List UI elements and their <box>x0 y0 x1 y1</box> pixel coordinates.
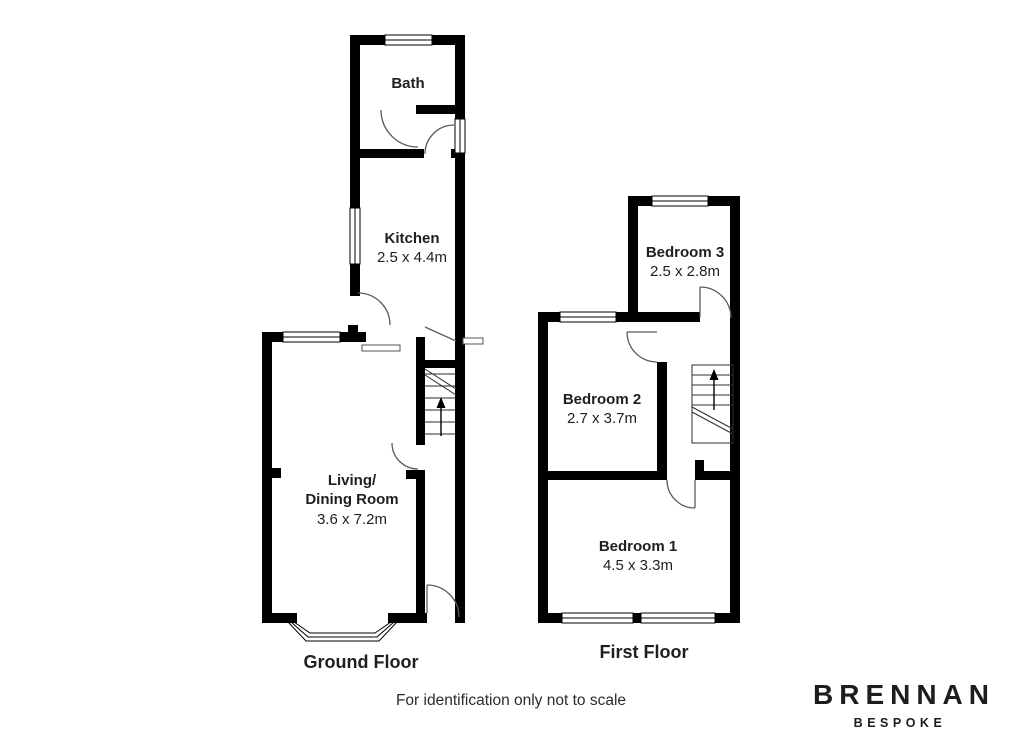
brand-name: BRENNAN <box>813 679 995 710</box>
brand-logo: BRENNAN BESPOKE <box>813 679 995 730</box>
wall <box>350 264 360 296</box>
stairs-first-floor <box>692 365 733 443</box>
side-door-opening <box>455 119 465 153</box>
room-label-kitchen: Kitchen <box>384 230 439 247</box>
kitchen-door-arc <box>358 293 390 325</box>
window <box>350 208 360 264</box>
wall <box>657 362 667 480</box>
side-door-arc <box>425 125 454 154</box>
bedroom3-door-arc <box>700 287 731 318</box>
room-size-living: 3.6 x 7.2m <box>317 511 387 528</box>
wall <box>695 460 704 471</box>
window <box>283 332 340 342</box>
room-label-bedroom2: Bedroom 2 <box>563 391 641 408</box>
bay-window <box>288 622 397 641</box>
first-floor-label: First Floor <box>600 642 689 662</box>
first-floor: Bedroom 3 2.5 x 2.8m Bedroom 2 2.7 x 3.7… <box>538 196 740 662</box>
step <box>362 345 400 351</box>
window <box>652 196 708 206</box>
wall <box>730 196 740 623</box>
wall <box>416 470 425 613</box>
wall <box>262 332 272 623</box>
hall-door-leaf <box>425 327 456 341</box>
wall <box>695 471 740 480</box>
window <box>560 312 616 322</box>
room-size-bedroom1: 4.5 x 3.3m <box>603 557 673 574</box>
room-label-living-line1: Living/ <box>328 472 377 489</box>
room-label-bedroom1: Bedroom 1 <box>599 538 677 555</box>
wall <box>416 105 463 114</box>
bath-door-arc <box>381 110 418 147</box>
room-size-bedroom2: 2.7 x 3.7m <box>567 410 637 427</box>
room-size-kitchen: 2.5 x 4.4m <box>377 249 447 266</box>
ground-floor-label: Ground Floor <box>304 652 419 672</box>
ground-floor: Bath Kitchen 2.5 x 4.4m Living/ Dining R… <box>262 35 483 672</box>
bay-opening <box>297 613 388 623</box>
front-door-arc <box>427 585 459 617</box>
up-arrow-icon <box>437 397 446 436</box>
room-label-living-line2: Dining Room <box>305 491 398 508</box>
window <box>562 613 633 623</box>
floorplan-page: Bath Kitchen 2.5 x 4.4m Living/ Dining R… <box>0 0 1024 741</box>
disclaimer-text: For identification only not to scale <box>396 692 626 709</box>
room-size-bedroom3: 2.5 x 2.8m <box>650 263 720 280</box>
step <box>463 338 483 344</box>
wall <box>628 196 638 322</box>
wall <box>538 471 667 480</box>
bedroom2-door-arc <box>627 332 657 362</box>
wall <box>416 337 425 445</box>
room-label-bedroom3: Bedroom 3 <box>646 244 724 261</box>
wall <box>272 468 281 478</box>
brand-tagline: BESPOKE <box>854 716 947 730</box>
wall <box>350 149 424 158</box>
wall <box>638 312 700 322</box>
floorplan-drawing: Bath Kitchen 2.5 x 4.4m Living/ Dining R… <box>0 0 1024 741</box>
window <box>385 35 432 45</box>
stairs-ground-floor <box>425 369 456 436</box>
window <box>641 613 715 623</box>
room-label-bath: Bath <box>391 75 424 92</box>
living-door-arc <box>392 443 418 469</box>
wall <box>424 360 455 368</box>
wall <box>406 470 416 479</box>
bedroom1-door-arc <box>667 480 695 508</box>
wall <box>350 35 360 208</box>
doorway-gap <box>427 613 455 623</box>
wall <box>538 312 548 623</box>
